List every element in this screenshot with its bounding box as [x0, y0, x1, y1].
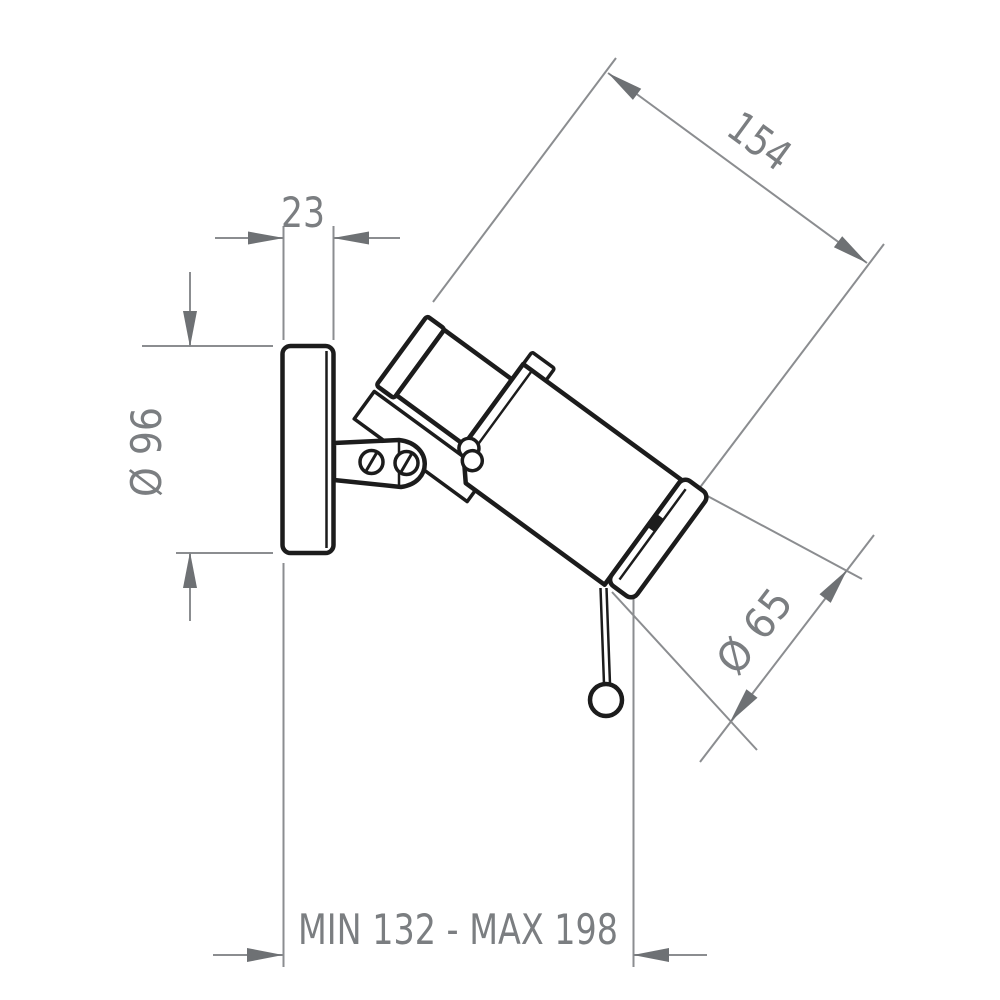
wall-plate: [283, 346, 334, 553]
dimension-projection-range: MIN 132 - MAX 198: [213, 563, 707, 967]
technical-drawing-page: 23 Ø 96 154 Ø 65 MIN 132 - MAX 198: [0, 0, 1000, 1000]
dimension-canopy-depth: 23: [215, 188, 400, 340]
extension-line: [433, 58, 616, 302]
pull-cord: [601, 588, 611, 684]
arrow-icon: [633, 948, 669, 962]
extension-line: [692, 244, 884, 498]
dimension-canopy-diameter: Ø 96: [122, 272, 273, 621]
arrow-icon: [183, 552, 197, 588]
arrow-icon: [834, 236, 867, 263]
extension-line: [284, 226, 334, 340]
dimension-line: [608, 73, 867, 263]
dim-label-head-diameter: Ø 65: [706, 579, 802, 683]
arrow-icon: [730, 689, 758, 722]
dim-label-canopy-depth: 23: [281, 188, 325, 237]
dim-label-body-length: 154: [718, 102, 800, 181]
arrow-icon: [183, 311, 197, 347]
arrow-icon: [333, 232, 369, 245]
extension-line: [700, 492, 862, 579]
dim-label-projection-range: MIN 132 - MAX 198: [298, 905, 618, 954]
mounting-arm: [334, 440, 425, 487]
arrow-icon: [820, 570, 848, 603]
arrow-icon: [248, 232, 284, 245]
spotlight-technical-drawing: 23 Ø 96 154 Ø 65 MIN 132 - MAX 198: [0, 0, 1000, 1000]
arrow-icon: [247, 948, 283, 962]
pull-cord-ball: [590, 684, 622, 716]
dim-label-canopy-diameter: Ø 96: [122, 407, 171, 497]
arrow-icon: [608, 73, 641, 100]
